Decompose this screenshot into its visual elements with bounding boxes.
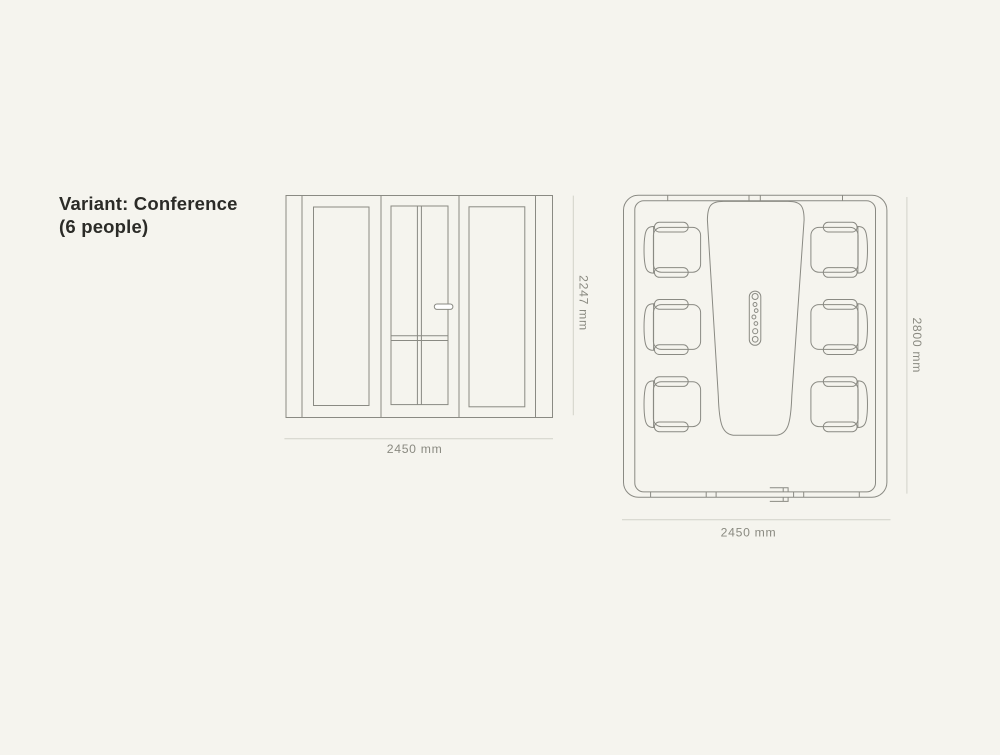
svg-text:2247 mm: 2247 mm — [576, 275, 590, 331]
svg-text:2450 mm: 2450 mm — [721, 526, 777, 540]
svg-text:2450 mm: 2450 mm — [387, 442, 443, 456]
svg-text:2800 mm: 2800 mm — [910, 317, 924, 373]
